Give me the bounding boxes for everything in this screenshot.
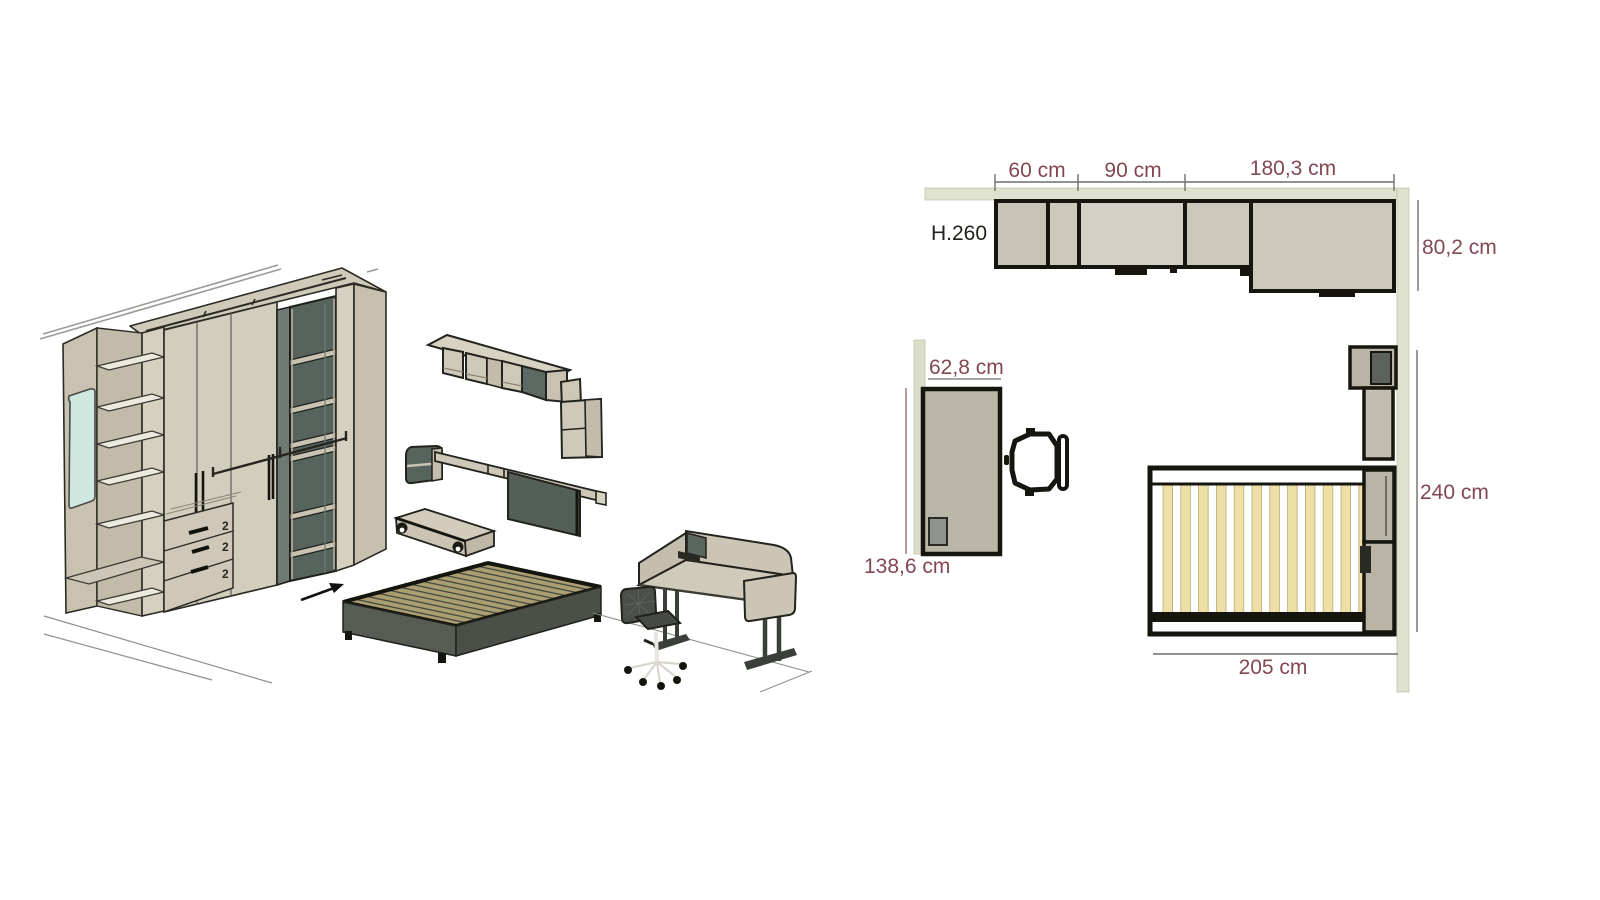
svg-text:240 cm: 240 cm — [1420, 481, 1489, 504]
svg-text:180,3 cm: 180,3 cm — [1250, 157, 1336, 180]
svg-text:2: 2 — [222, 567, 229, 581]
svg-text:205 cm: 205 cm — [1239, 656, 1308, 679]
svg-text:2: 2 — [222, 540, 229, 554]
svg-text:2: 2 — [222, 519, 229, 533]
svg-text:138,6 cm: 138,6 cm — [864, 555, 950, 578]
svg-text:90 cm: 90 cm — [1104, 159, 1161, 182]
svg-text:H.260: H.260 — [931, 222, 987, 245]
svg-text:62,8 cm: 62,8 cm — [929, 356, 1004, 379]
svg-text:60 cm: 60 cm — [1008, 159, 1065, 182]
svg-text:80,2 cm: 80,2 cm — [1422, 236, 1497, 259]
